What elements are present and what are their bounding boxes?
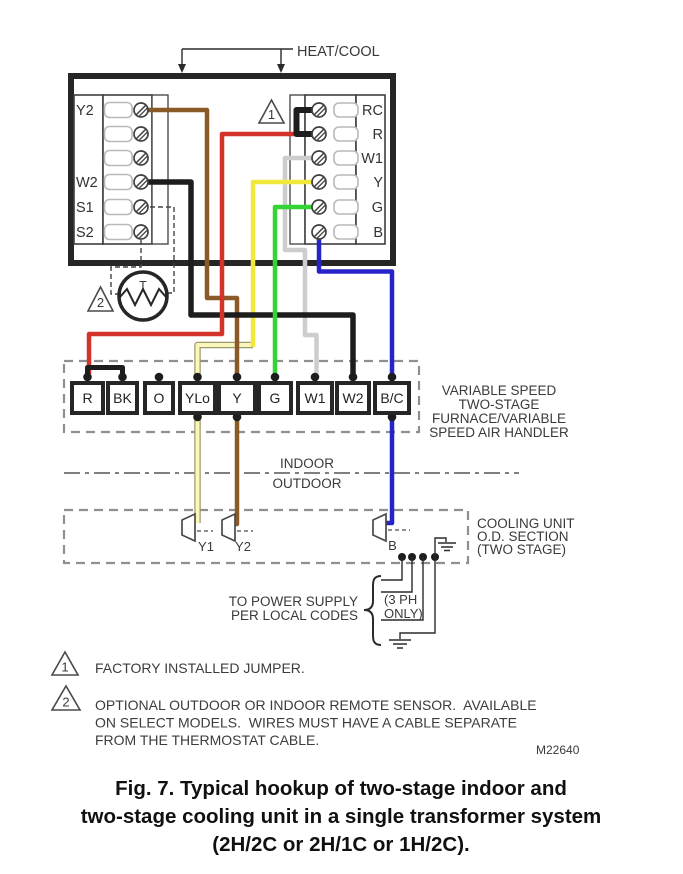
screw-icon (312, 200, 326, 214)
furnace-label-line: VARIABLE SPEED (442, 383, 557, 398)
figure-caption: Fig. 7. Typical hookup of two-stage indo… (81, 777, 602, 856)
document-number: M22640 (536, 743, 580, 757)
arrow-head-icon (178, 64, 186, 73)
furnace-label: VARIABLE SPEED TWO-STAGE FURNACE/VARIABL… (429, 383, 569, 440)
wiring-diagram-page: HEAT/COOL Y2 W2 S1 S2 (0, 0, 683, 869)
chassis-ground-icon (435, 538, 456, 557)
arrow-head-icon (277, 64, 285, 73)
strip-terminal-label: BK (113, 390, 132, 406)
earth-ground-icon (389, 640, 411, 648)
screw-icon (134, 103, 148, 117)
cooling-terminal-label: B (388, 538, 397, 553)
strip-terminal-label: W2 (343, 390, 364, 406)
screw-icon (312, 175, 326, 189)
terminal-label: W1 (361, 151, 383, 167)
note-2-text-line2: ON SELECT MODELS. WIRES MUST HAVE A CABL… (95, 715, 517, 731)
caption-line2: two-stage cooling unit in a single trans… (81, 805, 602, 828)
power-dots (398, 553, 439, 561)
caption-line1: Fig. 7. Typical hookup of two-stage indo… (115, 777, 567, 800)
phase-note-line2: ONLY) (384, 606, 423, 621)
note-2-text-line1: OPTIONAL OUTDOOR OR INDOOR REMOTE SENSOR… (95, 697, 537, 713)
caption-line3: (2H/2C or 2H/1C or 1H/2C). (212, 833, 469, 856)
terminal-label: G (372, 200, 383, 216)
mount-flange (152, 95, 168, 244)
terminal-label: S1 (76, 200, 94, 216)
screw-icon (312, 103, 326, 117)
cooling-dashed-box (64, 510, 468, 563)
cooling-terminal-label: Y1 (198, 539, 214, 554)
strip-terminal-label: B/C (380, 390, 403, 406)
screw-icon (312, 151, 326, 165)
terminal-label: RC (362, 103, 383, 119)
cooling-label-line: (TWO STAGE) (477, 542, 566, 557)
power-supply: TO POWER SUPPLY PER LOCAL CODES (3 PH ON… (229, 557, 435, 648)
power-line-1 (381, 557, 402, 580)
screw-icon (134, 175, 148, 189)
spade-terminal-icon (222, 514, 235, 541)
wiring-diagram: HEAT/COOL Y2 W2 S1 S2 (0, 0, 683, 869)
outdoor-label: OUTDOOR (273, 476, 342, 491)
screw-icon (134, 151, 148, 165)
strip-terminal-label: O (154, 390, 165, 406)
cooling-unit: Y1 Y2 B COOLING UNIT O.D. SECTION (TWO S… (182, 514, 575, 561)
indoor-outdoor-divider: INDOOR OUTDOOR (64, 456, 519, 491)
screw-icon (134, 200, 148, 214)
cooling-terminal-label: Y2 (235, 539, 251, 554)
screw-icon (134, 127, 148, 141)
terminal-label: Y2 (76, 103, 94, 119)
screw-icon (312, 225, 326, 239)
strip-terminal-label: W1 (305, 390, 326, 406)
note-1-number: 1 (61, 660, 68, 675)
wire-paleyellow-ylo (198, 345, 254, 374)
triangle-1-number: 1 (268, 107, 275, 122)
spade-terminal-icon (373, 514, 386, 541)
screw-icon (312, 127, 326, 141)
furnace-label-line: FURNACE/VARIABLE (432, 411, 566, 426)
terminal-label: W2 (76, 175, 98, 191)
wire-brown-cooling-y2 (229, 417, 237, 524)
footnotes: 1 FACTORY INSTALLED JUMPER. 2 OPTIONAL O… (52, 652, 580, 757)
jumper-r-bk (88, 368, 123, 377)
wire-paleyellow-outline (198, 345, 254, 374)
strip-terminal-label: R (82, 390, 92, 406)
furnace-terminal-strip: R BK O YLo Y G W1 W2 B/C (72, 373, 409, 422)
thermostat-left-terminal-block: Y2 W2 S1 S2 (74, 95, 168, 244)
note-2-text-line3: FROM THE THERMOSTAT CABLE. (95, 732, 319, 748)
power-supply-label-line2: PER LOCAL CODES (231, 608, 358, 623)
phase-note-line1: (3 PH (384, 592, 417, 607)
thermostat-right-terminal-block: RC R W1 Y G B (290, 95, 385, 244)
heat-cool-callout: HEAT/COOL (178, 44, 380, 73)
power-supply-label-line1: TO POWER SUPPLY (229, 594, 358, 609)
terminal-label: Y (373, 175, 383, 191)
brace-icon (364, 576, 381, 645)
terminal-label: B (373, 225, 383, 241)
factory-jumper-marker: 1 (259, 100, 284, 123)
terminal-label: R (373, 127, 383, 143)
strip-terminal-label: Y (232, 390, 242, 406)
triangle-2-number: 2 (97, 295, 104, 310)
spade-terminal-icon (182, 514, 195, 541)
screw-icon (134, 225, 148, 239)
heat-cool-label: HEAT/COOL (297, 44, 380, 60)
strip-terminal-label: G (270, 390, 281, 406)
note-2-number: 2 (62, 695, 69, 710)
furnace-label-line: TWO-STAGE (459, 397, 540, 412)
strip-terminal-label: YLo (185, 390, 210, 406)
furnace-label-line: SPEED AIR HANDLER (429, 425, 569, 440)
indoor-label: INDOOR (280, 456, 334, 471)
terminal-label: S2 (76, 225, 94, 241)
note-1-text: FACTORY INSTALLED JUMPER. (95, 660, 305, 676)
